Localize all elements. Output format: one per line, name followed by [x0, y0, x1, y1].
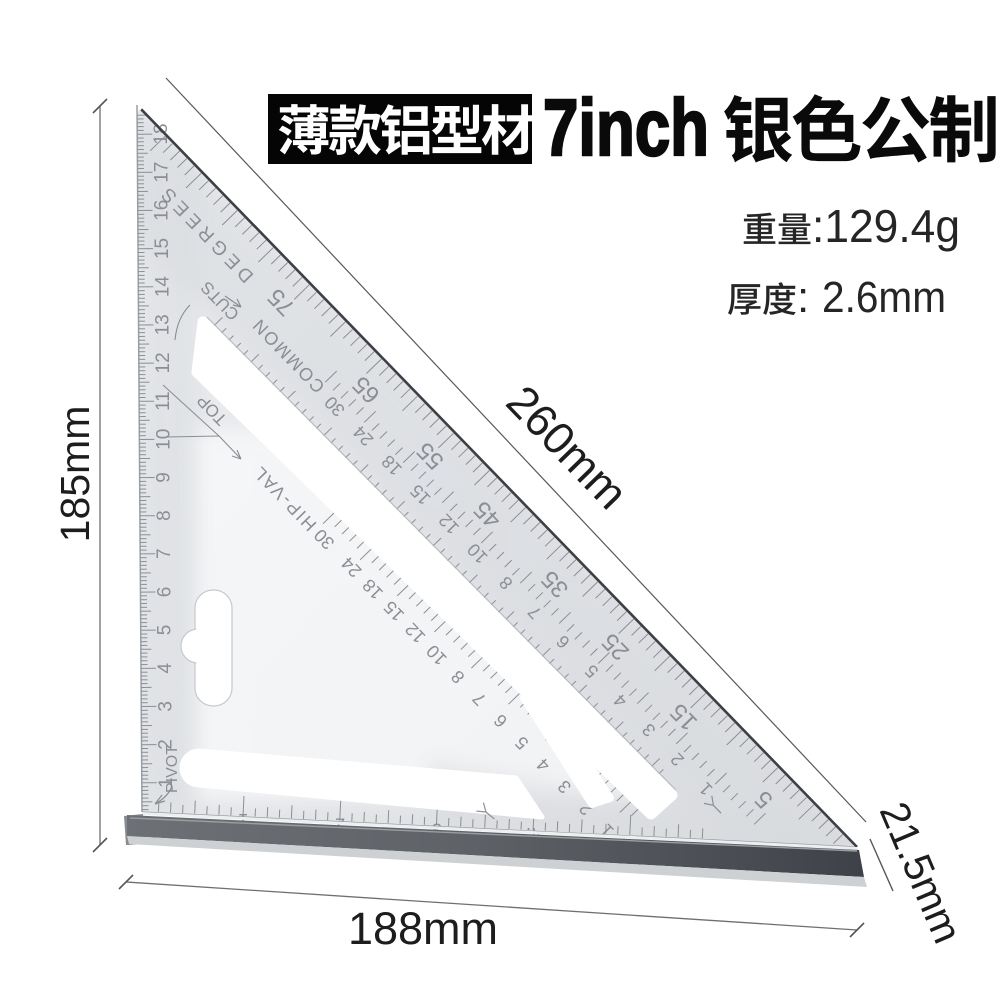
svg-text:2.6mm: 2.6mm: [822, 273, 946, 322]
svg-text:18: 18: [151, 123, 172, 144]
svg-text:13: 13: [153, 314, 174, 335]
svg-text:PIVOT: PIVOT: [164, 745, 181, 793]
svg-text:14: 14: [152, 276, 173, 298]
svg-text:5: 5: [155, 625, 176, 636]
svg-text::129.4g: :129.4g: [812, 200, 960, 252]
svg-text:3: 3: [155, 701, 176, 712]
svg-text:17: 17: [152, 162, 173, 183]
svg-text:12: 12: [153, 352, 174, 373]
svg-text:11: 11: [153, 391, 174, 411]
svg-text::: :: [797, 273, 809, 322]
svg-text:6: 6: [154, 587, 175, 598]
svg-text:4: 4: [155, 662, 176, 673]
svg-text:7: 7: [154, 548, 175, 559]
svg-text:8: 8: [154, 510, 175, 521]
svg-text:10: 10: [153, 429, 174, 450]
svg-text:7inch: 7inch: [543, 83, 709, 172]
svg-text:188mm: 188mm: [348, 903, 498, 954]
svg-text:15: 15: [152, 238, 173, 259]
svg-text:185mm: 185mm: [52, 406, 98, 543]
svg-text:9: 9: [154, 472, 175, 483]
